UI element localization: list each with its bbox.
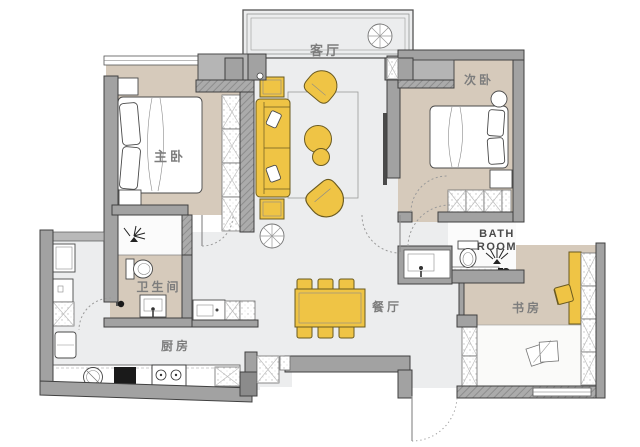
label-second-bedroom: 次卧 (464, 72, 494, 87)
label-kitchen: 厨房 (161, 338, 191, 353)
kitchen-counter-x (215, 367, 240, 386)
kitchen-counter-top (193, 300, 225, 321)
pillow (487, 109, 505, 136)
study-wardrobe (581, 253, 597, 385)
plant-icon-balcony (368, 24, 392, 48)
sofa (256, 99, 290, 197)
label-living-room: 客厅 (310, 43, 342, 58)
nightstand (490, 170, 512, 188)
label-bath: BATH (479, 228, 515, 240)
label-dining-room: 餐厅 (372, 299, 402, 314)
plant-icon-corridor (260, 224, 284, 248)
tv (383, 113, 387, 185)
door-stop (257, 73, 263, 79)
side-table-bottom (260, 199, 284, 219)
label-bathroom-main: 卫生间 (136, 279, 181, 294)
pillow (487, 137, 505, 164)
dining-table (295, 289, 365, 327)
guest-wardrobe (448, 190, 511, 213)
stool (491, 91, 507, 107)
study-storage (462, 326, 477, 386)
utility-counter (53, 302, 74, 326)
nightstand (118, 78, 138, 95)
cooktop-black (114, 367, 136, 385)
label-master-bedroom: 主卧 (154, 149, 186, 164)
floor-plan-page: 客厅 主卧 次卧 卫生间 BATH ROOM 厨房 餐厅 书房 (0, 0, 640, 447)
coffee-table-large (305, 126, 332, 153)
pillow (119, 146, 141, 189)
toilet-guest (458, 241, 478, 268)
master-wardrobe (222, 95, 242, 231)
label-study: 书房 (512, 300, 542, 315)
nightstand (119, 190, 141, 206)
gas-stove (152, 365, 186, 386)
utility-cabinet (52, 279, 73, 302)
toilet-main (126, 259, 153, 279)
entry-door-arc (412, 396, 457, 441)
dining-room (295, 279, 365, 338)
vanity (398, 246, 452, 284)
pillow (119, 102, 141, 145)
kitchen-cabinet (240, 301, 255, 321)
floor-plan-svg: 客厅 主卧 次卧 卫生间 BATH ROOM 厨房 餐厅 书房 (0, 0, 640, 447)
coffee-table-small (313, 149, 330, 166)
sink-main (140, 295, 166, 317)
shower-stall (118, 215, 182, 255)
label-room: ROOM (477, 241, 517, 253)
kitchen-cabinet-x (225, 301, 240, 321)
